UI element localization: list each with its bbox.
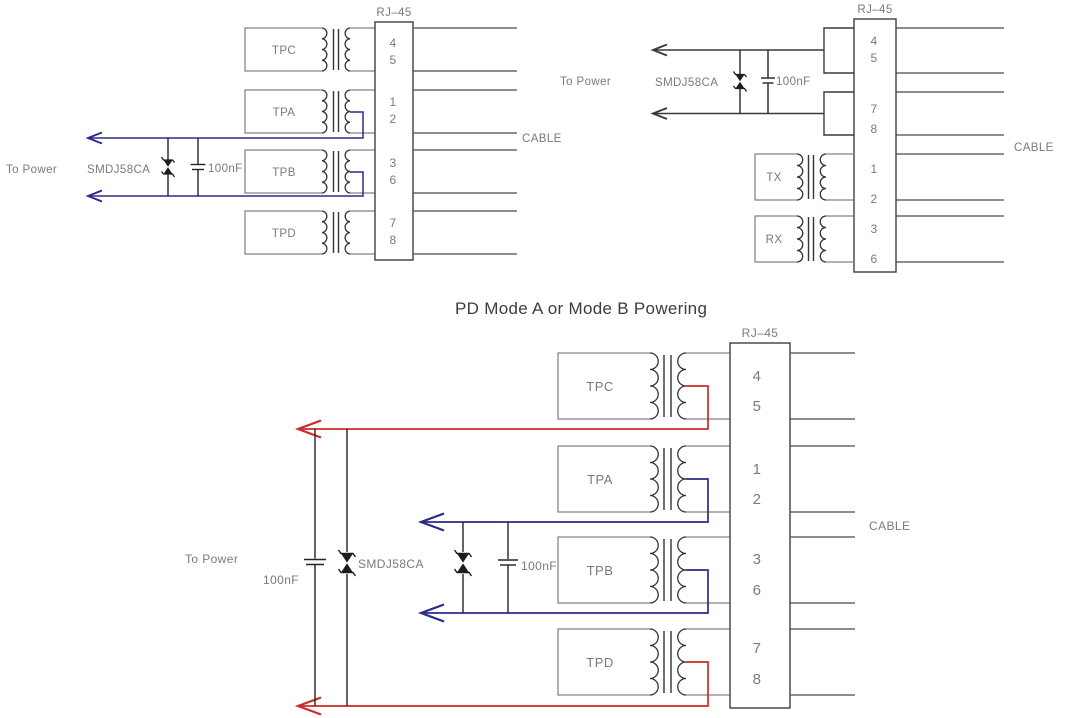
- pin-number: 2: [753, 491, 762, 508]
- tvs-diode-icon: [339, 429, 356, 706]
- to-power-label: To Power: [6, 164, 57, 176]
- rj45-connector: RJ–45 4 5 1 2 3 6 7 8: [375, 7, 413, 260]
- pin-number: 3: [870, 222, 877, 236]
- pin-number: 1: [753, 461, 762, 478]
- transformer-label: TX: [766, 172, 782, 184]
- pin-number: 2: [870, 192, 877, 206]
- cable-lines: [790, 353, 855, 695]
- pin-pair-link-45: [824, 28, 854, 73]
- transformer-label: TPB: [587, 563, 614, 578]
- diagram-bottom: PD Mode A or Mode B Powering TPC TPA TPB…: [185, 299, 910, 715]
- cable-label: CABLE: [522, 133, 562, 145]
- transformer-label: TPC: [586, 379, 614, 394]
- cable-label: CABLE: [869, 519, 910, 533]
- rj45-label: RJ–45: [376, 7, 411, 19]
- to-power-label: To Power: [185, 552, 238, 566]
- capacitor-icon: [761, 50, 775, 114]
- pin-number: 5: [389, 53, 396, 67]
- tvs-label: SMDJ58CA: [87, 164, 150, 176]
- pin-number: 1: [389, 95, 396, 109]
- tvs-label: SMDJ58CA: [655, 77, 718, 89]
- transformer-label: RX: [766, 234, 783, 246]
- transformer-label: TPA: [273, 107, 296, 119]
- rj45-label: RJ–45: [742, 326, 779, 340]
- pin-number: 5: [870, 51, 877, 65]
- power-wire-positive: [90, 112, 363, 138]
- pin-number: 4: [753, 368, 762, 385]
- cable-lines: [896, 28, 1004, 262]
- pin-number: 7: [753, 640, 762, 657]
- capacitor-icon: [191, 138, 206, 196]
- transformer-label: TPD: [586, 655, 614, 670]
- tvs-diode-icon: [162, 138, 175, 196]
- power-wire-data-positive: [423, 479, 708, 522]
- transformer-label: TPD: [272, 228, 296, 240]
- transformer-tpd: TPD: [245, 211, 375, 254]
- diagram-top-right: RJ–45 4 5 7 8 1 2 3 6 To Power S: [560, 4, 1054, 272]
- power-circuit: To Power SMDJ58CA 100nF: [6, 112, 363, 202]
- tvs-diode-icon: [455, 522, 472, 613]
- capacitor-icon: [304, 429, 326, 706]
- rj45-connector: RJ–45 4 5 1 2 3 6 7 8: [730, 326, 790, 708]
- capacitor-icon: [498, 522, 518, 613]
- pin-number: 8: [753, 671, 762, 688]
- pin-number: 5: [753, 398, 762, 415]
- cap-label: 100nF: [776, 76, 811, 88]
- transformer-label: TPA: [587, 472, 613, 487]
- cap-label: 100nF: [208, 163, 243, 175]
- to-power-label: To Power: [560, 76, 611, 88]
- transformer-rx: RX: [755, 216, 854, 262]
- pin-number: 8: [870, 122, 877, 136]
- pin-number: 1: [870, 162, 877, 176]
- pin-number: 4: [389, 36, 396, 50]
- transformer-label: TPB: [272, 167, 296, 179]
- tvs-diode-icon: [734, 50, 747, 114]
- rj45-label: RJ–45: [857, 4, 892, 16]
- pin-number: 3: [389, 156, 396, 170]
- pin-number: 8: [389, 233, 396, 247]
- tvs-label: SMDJ58CA: [358, 557, 424, 571]
- pin-number: 6: [753, 582, 762, 599]
- pin-number: 7: [870, 102, 877, 116]
- power-circuit: To Power 100nF SMDJ58CA 100nF: [185, 386, 708, 715]
- diagram-top-left: TPC TPA TPB TPD RJ–45 4 5 1 2 3 6 7 8: [6, 7, 562, 260]
- pin-pair-link-78: [824, 92, 854, 135]
- power-wire-data-negative: [423, 570, 708, 613]
- pin-number: 4: [870, 34, 877, 48]
- power-wire-spare-negative: [300, 662, 708, 706]
- cap-label: 100nF: [521, 559, 557, 573]
- transformer-tpc: TPC: [245, 28, 375, 71]
- poe-wiring-schematic: TPC TPA TPB TPD RJ–45 4 5 1 2 3 6 7 8: [0, 0, 1073, 718]
- pin-number: 6: [389, 173, 396, 187]
- pin-number: 6: [870, 252, 877, 266]
- cap-label: 100nF: [263, 573, 299, 587]
- diagram-title: PD Mode A or Mode B Powering: [455, 299, 707, 318]
- power-wire-spare-positive: [300, 386, 708, 429]
- power-circuit: To Power SMDJ58CA 100nF: [560, 45, 824, 120]
- rj45-connector: RJ–45 4 5 7 8 1 2 3 6: [854, 4, 896, 272]
- schematic-canvas: TPC TPA TPB TPD RJ–45 4 5 1 2 3 6 7 8: [0, 0, 1073, 718]
- cable-lines: [413, 28, 517, 254]
- transformer-label: TPC: [272, 45, 296, 57]
- cable-label: CABLE: [1014, 142, 1054, 154]
- transformer-tx: TX: [755, 154, 854, 200]
- pin-number: 3: [753, 551, 762, 568]
- pin-number: 2: [389, 112, 396, 126]
- pin-number: 7: [389, 216, 396, 230]
